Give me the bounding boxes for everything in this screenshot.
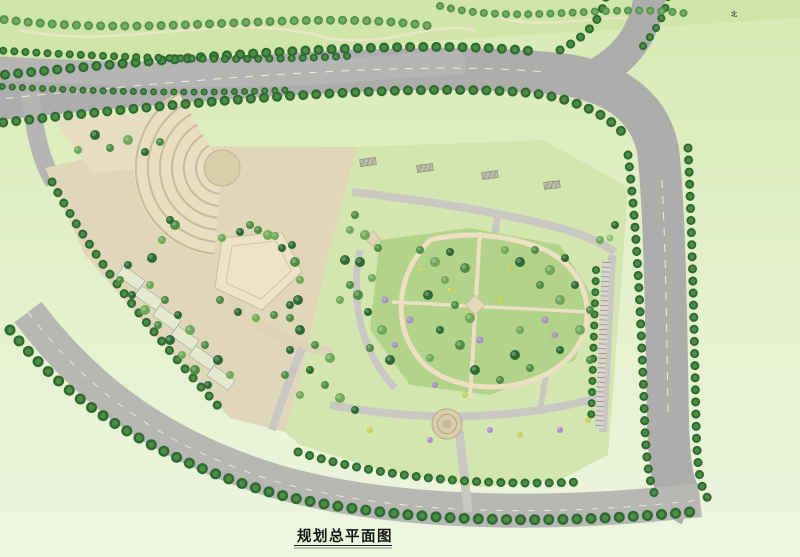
- tree-highlight: [352, 212, 356, 216]
- tree-highlight: [368, 428, 371, 431]
- tree-highlight: [279, 245, 283, 249]
- tree-highlight: [292, 259, 297, 264]
- site-plan-drawing: 规划总平面图 北: [0, 0, 800, 557]
- master-plan-page: 规划总平面图 北: [0, 0, 800, 557]
- tree-highlight: [287, 302, 291, 306]
- tree-highlight: [365, 309, 369, 313]
- tree-highlight: [537, 282, 541, 286]
- tree-highlight: [342, 257, 347, 262]
- tree-highlight: [433, 383, 436, 386]
- tree-highlight: [287, 347, 291, 351]
- tree-highlight: [322, 382, 326, 386]
- tree-highlight: [608, 236, 611, 239]
- tree-highlight: [457, 342, 462, 347]
- tree-highlight: [367, 345, 371, 349]
- compass-north-label: 北: [731, 10, 738, 18]
- tree-highlight: [418, 268, 421, 271]
- tree-highlight: [557, 297, 562, 302]
- tree-highlight: [157, 139, 161, 143]
- tree-highlight: [408, 318, 411, 321]
- tree-highlight: [425, 292, 430, 297]
- tree-highlight: [362, 232, 367, 237]
- tree-highlight: [295, 297, 300, 302]
- tree-highlight: [347, 227, 351, 231]
- tree-highlight: [297, 277, 301, 281]
- tree-highlight: [179, 352, 183, 356]
- tree-highlight: [572, 282, 576, 286]
- tree-highlight: [147, 282, 151, 286]
- tree-highlight: [271, 312, 275, 316]
- tree-highlight: [155, 322, 159, 326]
- tree-highlight: [327, 355, 332, 360]
- tree-highlight: [202, 342, 206, 346]
- tree-highlight: [92, 132, 97, 137]
- tree-highlight: [125, 262, 129, 266]
- tree-highlight: [272, 233, 276, 237]
- tree-highlight: [498, 298, 501, 301]
- tree-highlight: [347, 282, 351, 286]
- tree-highlight: [227, 372, 231, 376]
- tree-highlight: [379, 327, 384, 332]
- tree-highlight: [497, 377, 501, 381]
- tree-highlight: [369, 275, 373, 279]
- tree-highlight: [297, 392, 301, 396]
- tree-highlight: [355, 292, 360, 297]
- tree-highlight: [107, 145, 111, 149]
- tree-highlight: [282, 372, 286, 376]
- tree-highlight: [428, 438, 431, 441]
- tree-highlight: [472, 367, 477, 372]
- tree-highlight: [518, 433, 521, 436]
- tree-highlight: [517, 259, 522, 264]
- tree-highlight: [432, 259, 437, 264]
- plaza-center: [204, 150, 240, 186]
- tree-highlight: [577, 327, 582, 332]
- tree-highlight: [129, 292, 133, 296]
- page-title: 规划总平面图: [297, 527, 393, 545]
- tree-highlight: [167, 337, 172, 342]
- tree-highlight: [612, 222, 616, 226]
- tree-highlight: [159, 237, 163, 241]
- tree-highlight: [383, 298, 386, 301]
- tree-highlight: [247, 222, 251, 226]
- tree-highlight: [527, 365, 531, 369]
- tree-highlight: [587, 357, 591, 361]
- tree-highlight: [253, 315, 257, 319]
- tree-highlight: [462, 265, 467, 270]
- tree-highlight: [235, 309, 239, 313]
- tree-highlight: [215, 357, 220, 362]
- tree-highlight: [357, 259, 362, 264]
- tree-highlight: [192, 367, 197, 372]
- tree-highlight: [586, 418, 589, 421]
- tree-highlight: [219, 235, 223, 239]
- tree-highlight: [175, 312, 179, 316]
- tree-highlight: [393, 343, 396, 346]
- tree-highlight: [149, 255, 154, 260]
- tree-highlight: [289, 242, 293, 246]
- tree-highlight: [467, 315, 472, 320]
- tree-highlight: [187, 327, 192, 332]
- tree-highlight: [488, 428, 491, 431]
- tree-highlight: [297, 327, 302, 332]
- tree-highlight: [427, 355, 431, 359]
- tree-highlight: [337, 297, 341, 301]
- tree-highlight: [75, 147, 79, 151]
- fire-access-pad: [544, 181, 561, 190]
- tree-highlight: [237, 229, 241, 233]
- tree-highlight: [558, 428, 561, 431]
- tree-highlight: [597, 237, 601, 241]
- tree-highlight: [557, 347, 561, 351]
- tree-highlight: [337, 395, 342, 400]
- tree-highlight: [532, 247, 536, 251]
- tree-highlight: [562, 255, 566, 259]
- tree-highlight: [442, 277, 446, 281]
- tree-highlight: [117, 277, 121, 281]
- tree-highlight: [265, 232, 270, 237]
- tree-highlight: [167, 217, 171, 221]
- tree-highlight: [142, 149, 146, 153]
- tree-highlight: [142, 307, 147, 312]
- tree-highlight: [463, 393, 466, 396]
- tree-highlight: [375, 245, 379, 249]
- tree-highlight: [437, 327, 441, 331]
- tree-highlight: [447, 249, 451, 253]
- tree-highlight: [217, 297, 221, 301]
- tree-highlight: [255, 227, 259, 231]
- tree-highlight: [508, 266, 511, 269]
- entry-landscape-core: [443, 420, 452, 429]
- tree-highlight: [547, 267, 552, 272]
- tree-highlight: [517, 327, 521, 331]
- tree-highlight: [512, 352, 517, 357]
- tree-highlight: [162, 297, 166, 301]
- tree-highlight: [417, 247, 421, 251]
- tree-highlight: [478, 338, 481, 341]
- tree-highlight: [387, 357, 392, 362]
- tree-highlight: [205, 382, 209, 386]
- tree-highlight: [287, 315, 291, 319]
- tree-highlight: [502, 247, 506, 251]
- tree-highlight: [452, 302, 456, 306]
- tree-highlight: [352, 407, 356, 411]
- tree-highlight: [125, 137, 130, 142]
- tree-highlight: [543, 318, 546, 321]
- tree-highlight: [587, 307, 591, 311]
- tree-highlight: [307, 367, 311, 371]
- tree-highlight: [312, 342, 316, 346]
- tree-highlight: [448, 288, 451, 291]
- tree-highlight: [553, 333, 556, 336]
